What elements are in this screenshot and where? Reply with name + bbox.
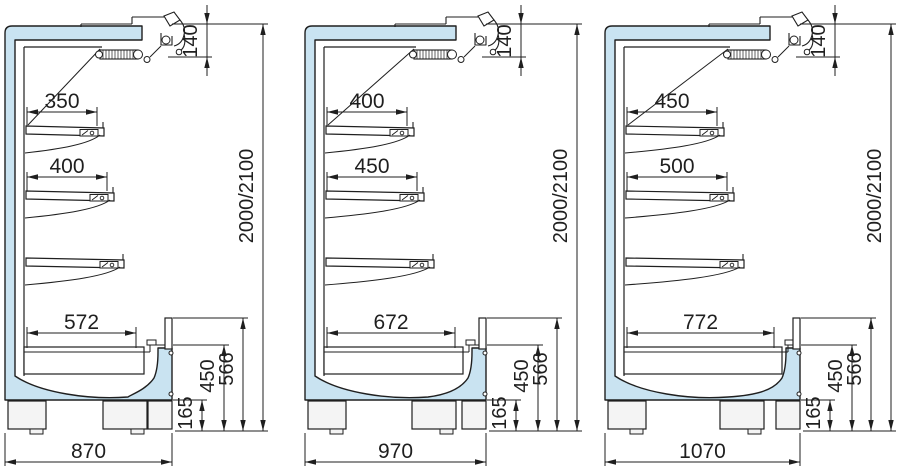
base-foot bbox=[608, 401, 646, 429]
foot-pad bbox=[131, 429, 144, 434]
grille-end bbox=[134, 50, 143, 59]
base-foot bbox=[412, 401, 456, 429]
dim-arrow bbox=[199, 400, 204, 411]
base-front-block bbox=[776, 401, 800, 429]
dim-arrow bbox=[513, 420, 518, 431]
front-bolt bbox=[169, 392, 173, 396]
dim-label: 672 bbox=[373, 311, 408, 334]
foot-pad bbox=[30, 429, 43, 434]
dim-label: 165 bbox=[803, 396, 825, 429]
dim-arrow bbox=[554, 318, 559, 329]
air-curtain-line bbox=[328, 49, 414, 125]
dim-label: 772 bbox=[683, 311, 718, 334]
foot-pad bbox=[630, 429, 643, 434]
base-front-block bbox=[462, 401, 486, 429]
base-foot bbox=[103, 401, 147, 429]
dim-label: 350 bbox=[44, 90, 79, 113]
foot-pad bbox=[330, 429, 343, 434]
dim-arrow bbox=[240, 318, 245, 329]
dim-arrow bbox=[832, 13, 837, 24]
base-foot bbox=[720, 401, 764, 429]
air-curtain-line bbox=[628, 49, 728, 125]
dim-arrow bbox=[535, 420, 540, 431]
dim-label: 2000/2100 bbox=[864, 149, 886, 244]
base-foot bbox=[308, 401, 346, 429]
shelf-bracket-curve bbox=[625, 267, 740, 285]
dim-arrow bbox=[305, 459, 316, 464]
bottom-tray bbox=[624, 347, 782, 374]
dim-arrow bbox=[574, 420, 579, 431]
front-sill-panel bbox=[165, 318, 172, 349]
fan-hub bbox=[790, 36, 798, 44]
step-detail bbox=[147, 340, 156, 345]
dim-arrow bbox=[518, 13, 523, 24]
dim-label: 140 bbox=[494, 24, 516, 57]
dim-arrow bbox=[260, 24, 265, 35]
linkage-roller bbox=[458, 57, 464, 63]
cabinet-section-1070-drawing: 45050077210701401654505662000/2100 bbox=[600, 0, 900, 470]
dim-label: 566 bbox=[216, 352, 238, 385]
shelf-bracket-curve bbox=[625, 200, 730, 218]
dim-label: 400 bbox=[349, 90, 384, 113]
cabinet-section-970: 4004506729701401654505662000/2100 bbox=[300, 0, 600, 470]
dim-arrow bbox=[260, 420, 265, 431]
shelf-bracket-curve bbox=[25, 135, 100, 153]
grille-end bbox=[724, 51, 731, 58]
dim-arrow bbox=[554, 420, 559, 431]
dim-label: 1070 bbox=[679, 440, 726, 463]
shelf-bracket-curve bbox=[25, 200, 110, 218]
linkage-roller bbox=[144, 57, 150, 63]
cabinet-section-1070: 45050077210701401654505662000/2100 bbox=[600, 0, 900, 470]
dim-label: 2000/2100 bbox=[236, 149, 258, 244]
dim-label: 566 bbox=[844, 352, 866, 385]
cabinet-section-870: 3504005728701401654505662000/2100 bbox=[0, 0, 300, 470]
shelf-bracket-curve bbox=[325, 267, 430, 285]
dim-arrow bbox=[627, 109, 638, 114]
dim-arrow bbox=[221, 420, 226, 431]
cabinet-section-870-drawing: 3504005728701401654505662000/2100 bbox=[0, 0, 300, 470]
foot-pad bbox=[440, 429, 453, 434]
dim-arrow bbox=[125, 330, 136, 335]
step-detail bbox=[466, 340, 475, 345]
grille-end bbox=[448, 50, 457, 59]
fan-hub bbox=[476, 36, 484, 44]
dim-arrow bbox=[868, 420, 873, 431]
dim-arrow bbox=[827, 400, 832, 411]
grille-end bbox=[410, 51, 417, 58]
dim-label: 2000/2100 bbox=[550, 149, 572, 244]
dim-arrow bbox=[827, 420, 832, 431]
fan-hub bbox=[162, 36, 170, 44]
dim-label: 970 bbox=[378, 440, 413, 463]
dim-label: 500 bbox=[659, 155, 694, 178]
dim-arrow bbox=[86, 109, 97, 114]
cabinet-body-section bbox=[305, 26, 486, 400]
dim-arrow bbox=[627, 174, 638, 179]
bottom-tray bbox=[324, 347, 463, 374]
dim-label: 450 bbox=[354, 155, 389, 178]
dim-arrow bbox=[888, 420, 893, 431]
dim-label: 165 bbox=[489, 396, 511, 429]
base-foot bbox=[8, 401, 46, 429]
dim-label: 140 bbox=[808, 24, 830, 57]
dim-arrow bbox=[868, 318, 873, 329]
dim-arrow bbox=[444, 330, 455, 335]
dim-arrow bbox=[27, 330, 38, 335]
linkage-arm bbox=[464, 46, 475, 57]
linkage-arm bbox=[150, 46, 161, 57]
dim-arrow bbox=[513, 400, 518, 411]
dim-arrow bbox=[327, 174, 338, 179]
front-bolt bbox=[797, 392, 801, 396]
shelf-bracket-curve bbox=[325, 200, 420, 218]
grille-end bbox=[762, 50, 771, 59]
dim-arrow bbox=[605, 459, 616, 464]
cabinet-body-section bbox=[605, 26, 800, 400]
front-bolt bbox=[483, 392, 487, 396]
dim-label: 165 bbox=[175, 396, 197, 429]
dim-arrow bbox=[96, 174, 107, 179]
dim-label: 450 bbox=[654, 90, 689, 113]
dim-arrow bbox=[716, 174, 727, 179]
dim-label: 400 bbox=[49, 155, 84, 178]
dim-label: 870 bbox=[71, 440, 106, 463]
dim-label: 566 bbox=[530, 352, 552, 385]
front-bolt bbox=[797, 351, 801, 355]
shelf-bracket-curve bbox=[625, 135, 720, 153]
dim-arrow bbox=[706, 109, 717, 114]
dim-arrow bbox=[199, 420, 204, 431]
dim-arrow bbox=[406, 174, 417, 179]
dim-arrow bbox=[574, 24, 579, 35]
drawing-group: 3504005728701401654505662000/2100 bbox=[5, 5, 268, 466]
dim-arrow bbox=[518, 57, 523, 68]
dim-arrow bbox=[849, 420, 854, 431]
dim-arrow bbox=[888, 24, 893, 35]
linkage-roller bbox=[772, 57, 778, 63]
dim-arrow bbox=[763, 330, 774, 335]
shelf-bracket-curve bbox=[325, 135, 410, 153]
dim-arrow bbox=[327, 109, 338, 114]
drawing-group: 45050077210701401654505662000/2100 bbox=[605, 5, 896, 466]
dim-arrow bbox=[475, 459, 486, 464]
bottom-tray bbox=[24, 347, 144, 374]
dim-arrow bbox=[789, 459, 800, 464]
front-bolt bbox=[169, 351, 173, 355]
base-front-block bbox=[148, 401, 172, 429]
grille-end bbox=[96, 51, 103, 58]
dim-arrow bbox=[396, 109, 407, 114]
dim-arrow bbox=[204, 57, 209, 68]
drawing-group: 4004506729701401654505662000/2100 bbox=[305, 5, 582, 466]
front-sill-panel bbox=[793, 318, 800, 349]
front-sill-panel bbox=[479, 318, 486, 349]
dim-arrow bbox=[27, 109, 38, 114]
shelf-bracket-curve bbox=[25, 267, 120, 285]
foot-pad bbox=[748, 429, 761, 434]
dim-arrow bbox=[27, 174, 38, 179]
dim-arrow bbox=[204, 13, 209, 24]
front-bolt bbox=[483, 351, 487, 355]
dim-arrow bbox=[161, 459, 172, 464]
dim-arrow bbox=[327, 330, 338, 335]
linkage-arm bbox=[778, 46, 789, 57]
dim-arrow bbox=[5, 459, 16, 464]
technical-diagram-sheet: 3504005728701401654505662000/2100 400450… bbox=[0, 0, 900, 470]
dim-label: 140 bbox=[180, 24, 202, 57]
dim-label: 572 bbox=[64, 311, 99, 334]
cabinet-section-970-drawing: 4004506729701401654505662000/2100 bbox=[300, 0, 600, 470]
dim-arrow bbox=[627, 330, 638, 335]
dim-arrow bbox=[240, 420, 245, 431]
dim-arrow bbox=[832, 57, 837, 68]
